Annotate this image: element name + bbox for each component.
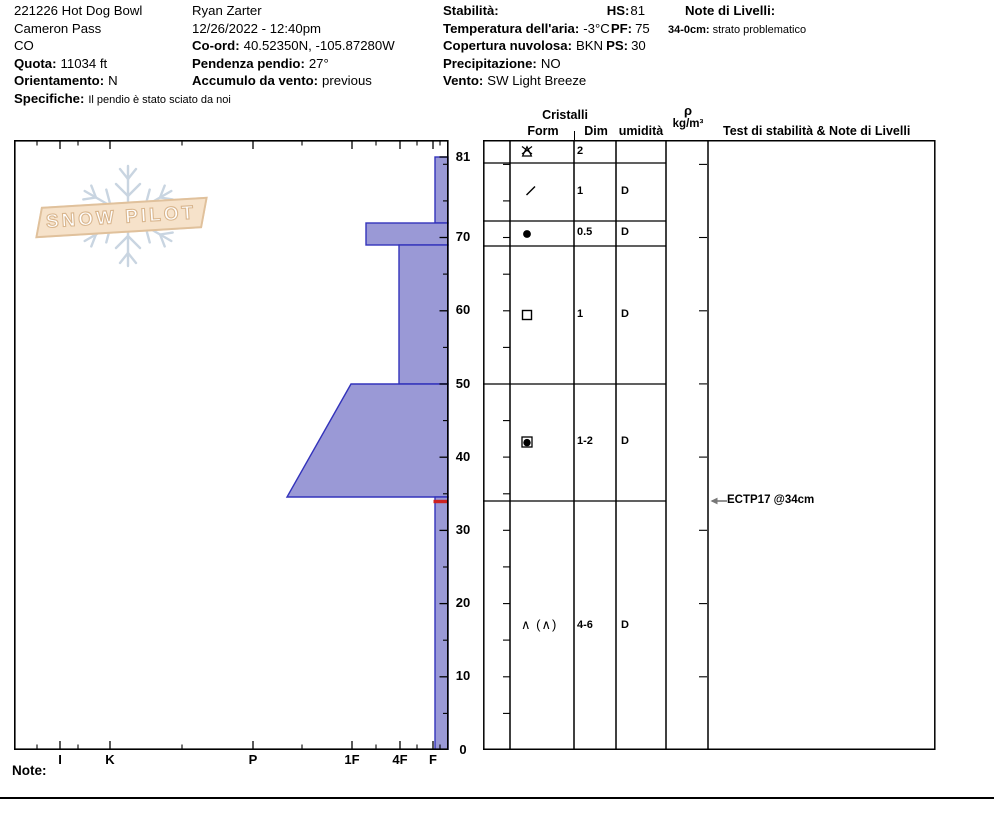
air-temp-row: Temperatura dell'aria:-3°CPF:75 — [443, 21, 650, 37]
col-header-rho: ρ — [668, 103, 708, 118]
hardness-label-4f: 4F — [385, 752, 415, 767]
hardness-label-k: K — [95, 752, 125, 767]
hardness-major-ticks-bottom — [60, 741, 433, 749]
layer-note-row: 34-0cm:strato problematico — [668, 22, 806, 38]
hs-value: 81 — [630, 3, 645, 18]
wind-loading-label: Accumulo da vento: — [192, 73, 318, 88]
problem-layer-flag — [434, 500, 449, 503]
grain-dh-symbol: ∧ (∧) — [521, 617, 557, 633]
wind-value: SW Light Breeze — [487, 73, 586, 88]
form-column-depth-ticks — [503, 164, 510, 713]
layer-bar-69-50 — [399, 245, 448, 384]
layer-bar-34-0 — [435, 497, 448, 750]
precip-row: Precipitazione:NO — [443, 56, 561, 72]
dim-value: 1-2 — [577, 435, 593, 447]
slope-row: Pendenza pendio:27° — [192, 56, 329, 72]
layer-bar-72-69 — [366, 223, 448, 245]
coord-row: Co-ord:40.52350N, -105.87280W — [192, 38, 395, 54]
col-header-tests: Test di stabilità & Note di Livelli — [723, 124, 953, 138]
depth-label-10: 10 — [448, 668, 478, 683]
moisture-value: D — [621, 185, 629, 197]
wind-loading-row: Accumulo da vento:previous — [192, 73, 372, 89]
test-arrow-icon — [711, 498, 728, 505]
pf-label: PF: — [611, 21, 632, 36]
ps-label: PS: — [606, 38, 628, 53]
layer-bar-81-72 — [435, 157, 448, 223]
dim-value: 0.5 — [577, 226, 592, 238]
layer-notes-title: Note di Livelli: — [685, 3, 775, 19]
wind-row: Vento:SW Light Breeze — [443, 73, 586, 89]
col-header-rho-units: kg/m³ — [668, 118, 708, 130]
pit-notes-row: Specifiche:Il pendio è stato sciato da n… — [14, 91, 231, 108]
observer: Ryan Zarter — [192, 3, 262, 19]
hardness-layer-bars — [287, 157, 448, 750]
ps-value: 30 — [631, 38, 646, 53]
footer-note-label: Note: — [12, 763, 47, 778]
moisture-value: D — [621, 619, 629, 631]
moisture-value: D — [621, 308, 629, 320]
sky-row: Copertura nuvolosa:BKNPS:30 — [443, 38, 646, 54]
aspect-row: Orientamento:N — [14, 73, 118, 89]
coord-value: 40.52350N, -105.87280W — [244, 38, 395, 53]
pit-notes-label: Specifiche: — [14, 91, 84, 106]
dim-value: 2 — [577, 145, 583, 157]
stability-label: Stabilità: — [443, 3, 499, 18]
pit-notes-value: Il pendio è stato sciato da noi — [88, 94, 230, 106]
aspect-label: Orientamento: — [14, 73, 104, 88]
density-column-depth-ticks — [699, 164, 707, 676]
dim-value: 1 — [577, 308, 583, 320]
depth-label-81: 81 — [448, 149, 478, 164]
hardness-major-ticks-top — [60, 141, 433, 149]
hardness-label-1f: 1F — [337, 752, 367, 767]
footer-divider — [0, 797, 994, 799]
datetime: 12/26/2022 - 12:40pm — [192, 21, 321, 37]
depth-label-70: 70 — [448, 229, 478, 244]
elevation-row: Quota:11034 ft — [14, 56, 107, 72]
table-grid — [483, 140, 935, 750]
depth-label-50: 50 — [448, 376, 478, 391]
depth-label-60: 60 — [448, 302, 478, 317]
dim-value: 1 — [577, 185, 583, 197]
air-temp-value: -3°C — [583, 21, 610, 36]
wind-label: Vento: — [443, 73, 483, 88]
elevation-label: Quota: — [14, 56, 57, 71]
grain-rg-icon — [519, 226, 535, 242]
pit-state: CO — [14, 38, 34, 54]
grain-df-icon — [523, 183, 539, 199]
sky-value: BKN — [576, 38, 603, 53]
snowpilot-profile-page: { "logo": { "text": "SNOW PILOT" }, "hea… — [0, 0, 994, 840]
pf-value: 75 — [635, 21, 650, 36]
grain-fc-rg-mixed-icon — [519, 434, 535, 450]
dim-value: 4-6 — [577, 619, 593, 631]
form-dim-divider-tick — [574, 131, 576, 140]
elevation-value: 11034 ft — [61, 56, 108, 71]
col-header-cristalli: Cristalli — [520, 108, 610, 122]
slope-value: 27° — [309, 56, 329, 71]
layer-bar-50-34 — [287, 384, 448, 497]
pit-name: 221226 Hot Dog Bowl — [14, 3, 142, 19]
wind-loading-value: previous — [322, 73, 372, 88]
stability-test-result: ECTP17 @34cm — [727, 494, 814, 506]
col-header-dim: Dim — [575, 124, 617, 138]
depth-label-20: 20 — [448, 595, 478, 610]
hardness-label-p: P — [238, 752, 268, 767]
hs-label: HS: — [607, 3, 630, 18]
layer-note-text: strato problematico — [713, 24, 807, 36]
hardness-label-f: F — [418, 752, 448, 767]
depth-label-0: 0 — [448, 742, 478, 757]
aspect-value: N — [108, 73, 118, 88]
depth-label-40: 40 — [448, 449, 478, 464]
col-header-humidity: umidità — [615, 124, 667, 138]
layer-note-range: 34-0cm: — [668, 24, 710, 36]
pit-location: Cameron Pass — [14, 21, 101, 37]
col-header-form: Form — [513, 124, 573, 138]
sky-label: Copertura nuvolosa: — [443, 38, 572, 53]
coord-label: Co-ord: — [192, 38, 240, 53]
grain-pp-stellar-icon — [519, 143, 535, 160]
moisture-value: D — [621, 435, 629, 447]
air-temp-label: Temperatura dell'aria: — [443, 21, 579, 36]
precip-value: NO — [541, 56, 561, 71]
grain-fc-icon — [519, 307, 535, 323]
hardness-label-i: I — [45, 752, 75, 767]
precip-label: Precipitazione: — [443, 56, 537, 71]
stability-row: Stabilità:HS:81 — [443, 3, 645, 19]
moisture-value: D — [621, 226, 629, 238]
slope-label: Pendenza pendio: — [192, 56, 305, 71]
depth-label-30: 30 — [448, 522, 478, 537]
